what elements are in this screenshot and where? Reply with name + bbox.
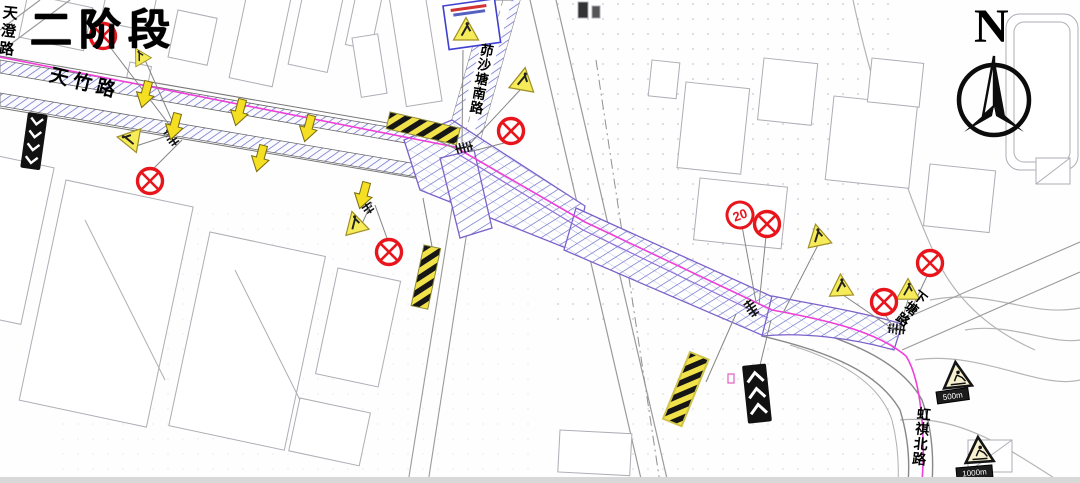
phase-title: 二阶段: [30, 8, 177, 52]
construction-phase-plan: 20 500m 1000m 二阶段 天澄路 天竹路 茆沙塘南路 下塘路 虹祺北路…: [0, 0, 1080, 483]
advance-warning-signboard: [443, 0, 501, 50]
north-letter: N: [974, 2, 1009, 52]
roadworks-distance-sign-near: 500m: [936, 361, 972, 404]
image-edge-strip: [0, 477, 1080, 483]
